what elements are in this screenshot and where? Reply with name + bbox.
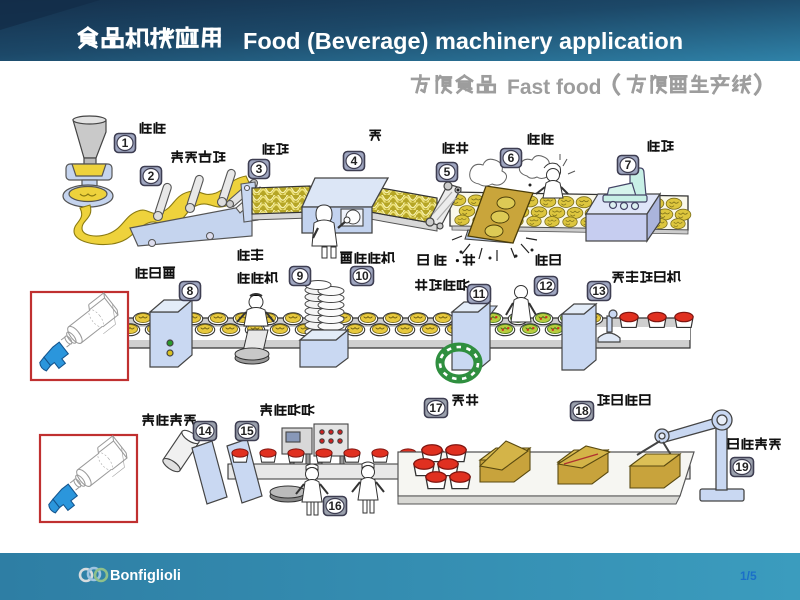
svg-text:12: 12 (539, 279, 553, 293)
svg-text:8: 8 (187, 284, 194, 298)
svg-text:Fast food: Fast food (507, 76, 602, 99)
svg-text:3: 3 (256, 162, 263, 176)
svg-text:16: 16 (328, 499, 342, 513)
svg-text:2: 2 (148, 169, 155, 183)
svg-text:1: 1 (122, 136, 129, 150)
svg-text:14: 14 (198, 424, 212, 438)
svg-text:Bonfiglioli: Bonfiglioli (110, 568, 181, 584)
svg-text:19: 19 (735, 460, 749, 474)
svg-text:6: 6 (508, 151, 515, 165)
svg-text:10: 10 (355, 269, 369, 283)
svg-text:17: 17 (429, 401, 443, 415)
svg-text:4: 4 (351, 154, 358, 168)
svg-text:5: 5 (444, 165, 451, 179)
svg-text:9: 9 (297, 269, 304, 283)
svg-text:Food (Beverage) machinery appl: Food (Beverage) machinery application (243, 28, 683, 54)
svg-text:15: 15 (240, 424, 254, 438)
svg-text:7: 7 (625, 158, 632, 172)
svg-text:1/5: 1/5 (740, 569, 757, 583)
svg-text:18: 18 (575, 404, 589, 418)
svg-text:13: 13 (592, 284, 606, 298)
svg-text:11: 11 (473, 287, 486, 301)
